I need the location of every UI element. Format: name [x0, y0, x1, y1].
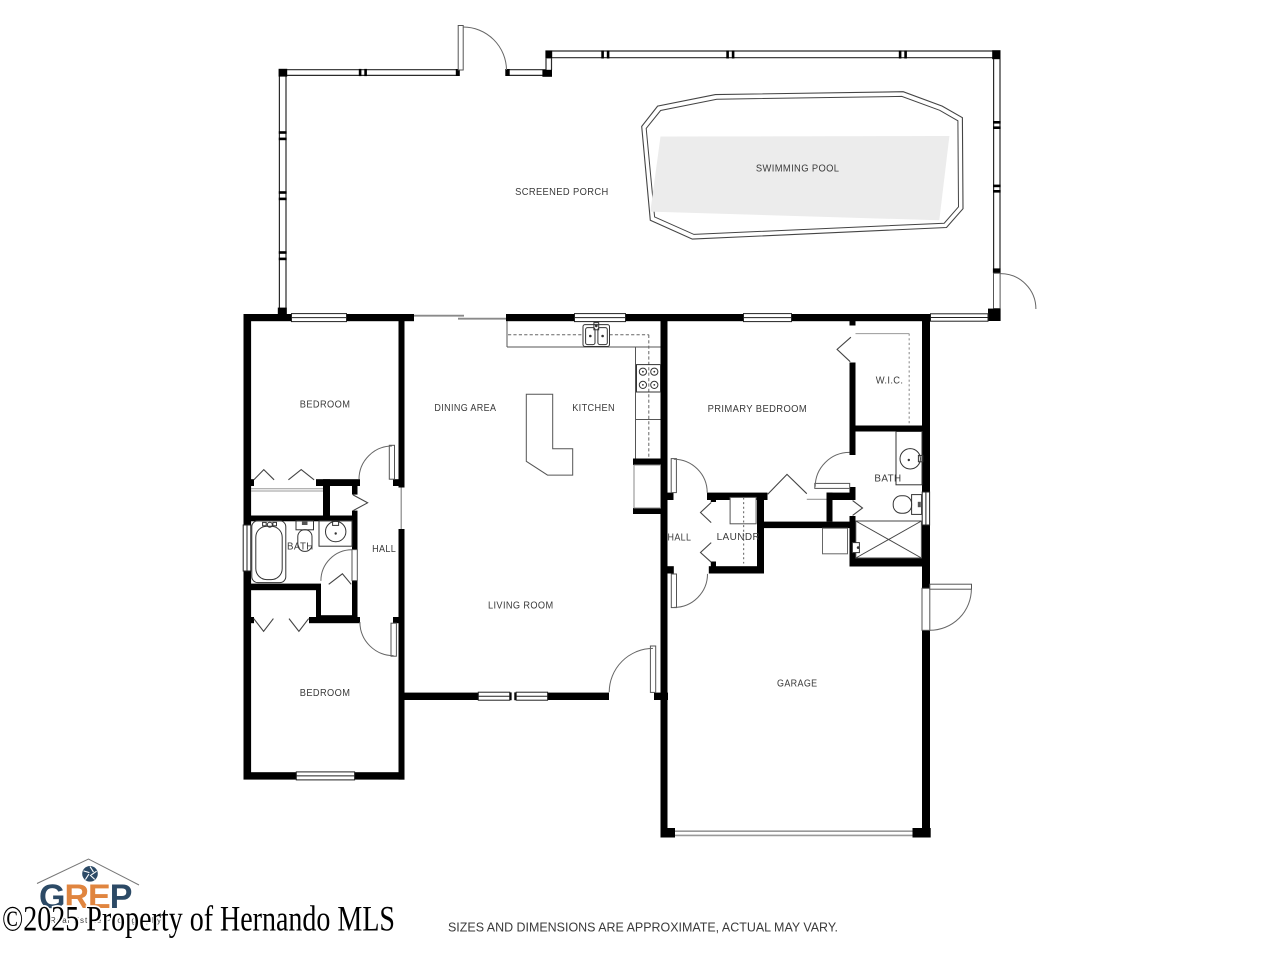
svg-text:BEDROOM: BEDROOM — [300, 399, 351, 410]
svg-text:DINING AREA: DINING AREA — [434, 403, 496, 414]
svg-text:HALL: HALL — [668, 533, 692, 544]
svg-text:SWIMMING POOL: SWIMMING POOL — [756, 164, 840, 175]
svg-text:W.I.C.: W.I.C. — [876, 375, 904, 386]
svg-text:HALL: HALL — [372, 544, 396, 555]
svg-text:KITCHEN: KITCHEN — [572, 403, 615, 414]
svg-text:BEDROOM: BEDROOM — [300, 688, 351, 699]
svg-text:SIZES AND DIMENSIONS ARE APPRO: SIZES AND DIMENSIONS ARE APPROXIMATE, AC… — [448, 920, 838, 935]
svg-text:LIVING ROOM: LIVING ROOM — [488, 600, 554, 611]
svg-text:SCREENED PORCH: SCREENED PORCH — [515, 187, 609, 198]
svg-text:GARAGE: GARAGE — [777, 679, 818, 690]
svg-text:BATH: BATH — [287, 541, 314, 552]
svg-text:BATH: BATH — [874, 474, 901, 485]
svg-text:©2025 Property of Hernando MLS: ©2025 Property of Hernando MLS — [2, 899, 395, 939]
svg-text:PRIMARY BEDROOM: PRIMARY BEDROOM — [708, 404, 808, 415]
